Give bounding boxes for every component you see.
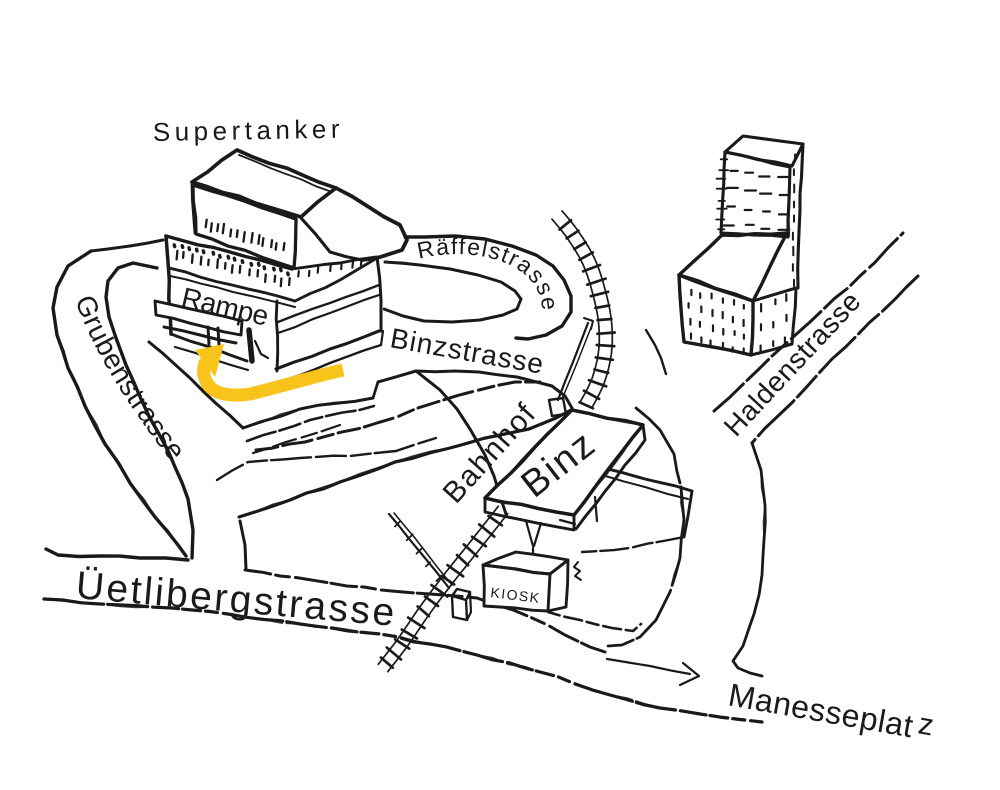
svg-text:Supertanker: Supertanker [153, 114, 345, 147]
